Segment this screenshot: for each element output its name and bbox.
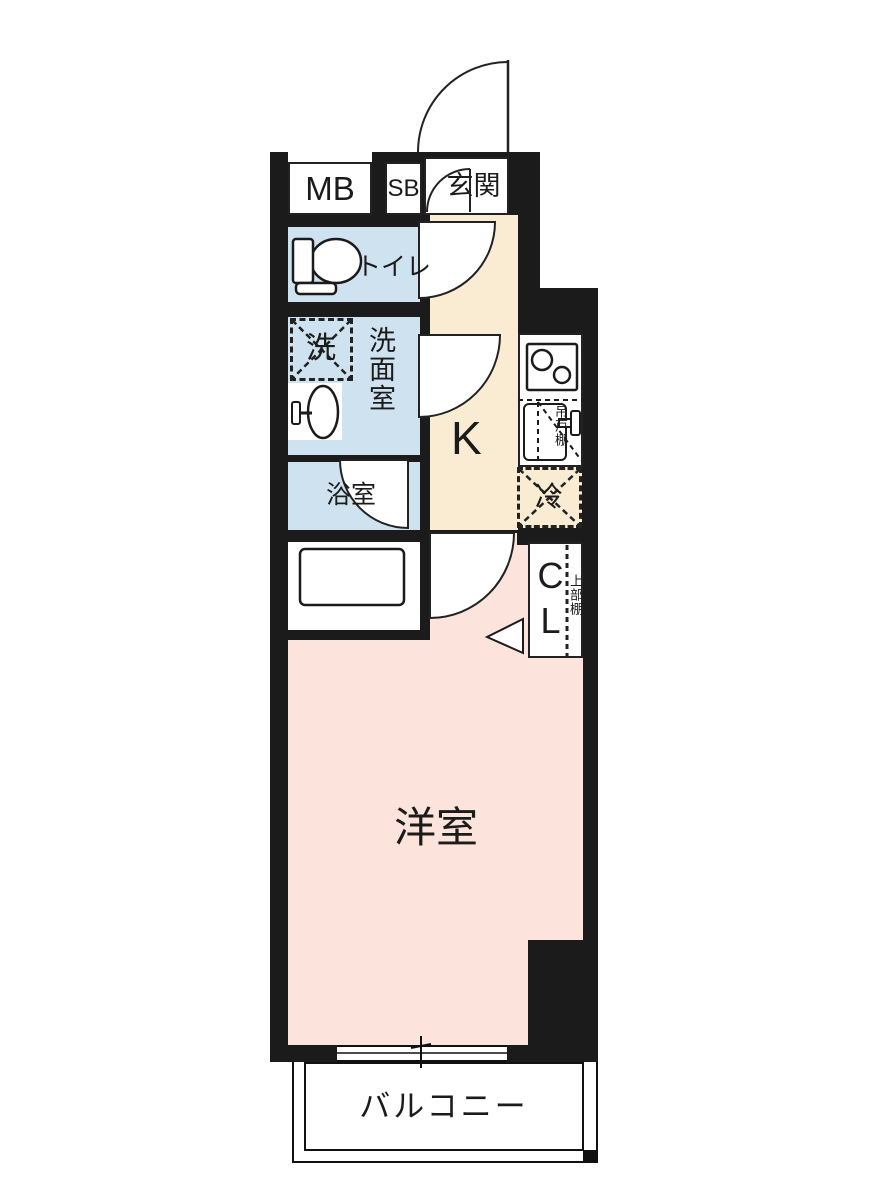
balcony-corner-block [583,1150,598,1163]
kitchen-corridor [430,215,518,530]
washing-machine-label: 洗 [306,334,336,364]
upper-shelf-label: 上部棚 [569,574,582,616]
basin-inset [288,383,342,440]
balcony-inner-rail: バルコニー [304,1062,584,1151]
meter-box-label: MB [305,172,355,205]
bathroom-label: 浴室 [326,483,376,508]
balcony-label: バルコニー [359,1091,528,1122]
kitchen-label: K [451,415,482,461]
western-room-doorway-floor [430,533,517,640]
meter-box: MB [288,162,372,215]
entrance-room: 玄関 [424,157,509,215]
kitchen-counter [518,333,583,467]
shoe-box: SB [385,162,422,215]
refrigerator-label: 冷 [535,483,563,511]
entrance-door-arc [418,60,508,152]
tub-room [288,542,420,630]
entrance-label: 玄関 [447,173,501,200]
shoe-box-label: SB [387,177,419,201]
washroom-label: 洗面室 [366,326,393,413]
toilet-label: トイレ [356,255,431,280]
western-room-floor-sliver [517,545,528,640]
balcony-window [337,1045,507,1062]
western-room-label: 洋室 [394,807,478,849]
hanging-cupboard-label: 吊戸棚 [554,405,567,447]
floorplan-canvas: バルコニー MB SB 玄関 [0,0,880,1200]
wall-pillar [528,940,598,1062]
closet-label: CL [532,555,568,645]
